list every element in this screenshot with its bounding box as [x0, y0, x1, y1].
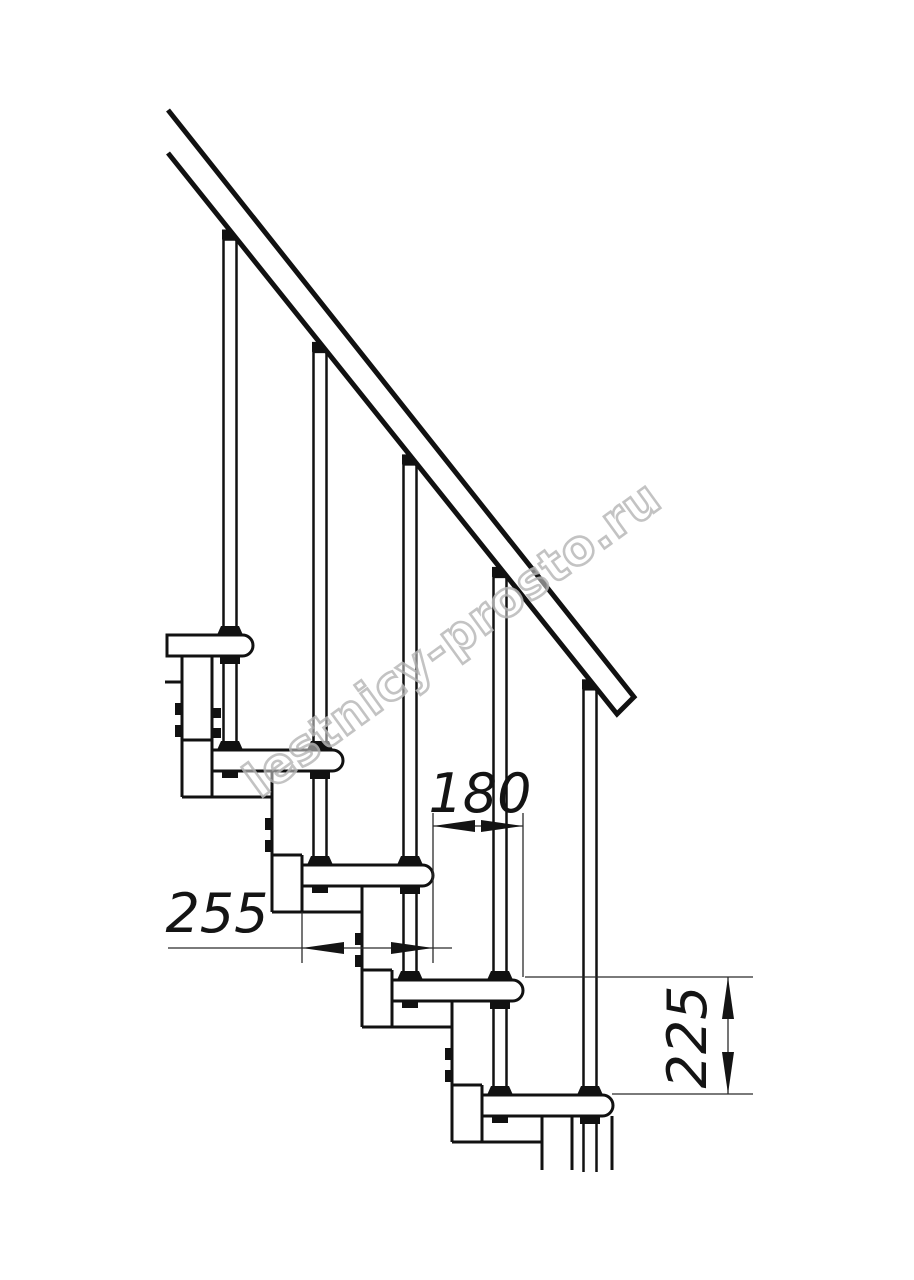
tread [167, 635, 253, 656]
bolt [175, 703, 182, 715]
handrail-profile [168, 110, 634, 714]
bolt [220, 656, 240, 664]
bolt [445, 1070, 452, 1082]
tread [302, 865, 433, 886]
dimension-arrow [391, 942, 433, 954]
flange [577, 1086, 603, 1095]
baluster [314, 352, 327, 750]
bolt [402, 1001, 418, 1008]
flange [487, 971, 513, 980]
bolt [400, 886, 420, 894]
bolt [492, 1116, 508, 1123]
dimension-rise-label: 225 [656, 985, 719, 1088]
flange [397, 971, 423, 980]
watermark: lestnicy-prosto.ru [234, 469, 672, 808]
bolt [355, 933, 362, 945]
handrail [168, 110, 634, 714]
dimension-depth-label: 255 [165, 882, 268, 945]
dimension-run-label: 180 [428, 762, 531, 825]
dimension-arrow [722, 977, 734, 1019]
drawing-canvas: 180 255 225 lestnicy-prosto.ru [0, 0, 914, 1280]
bolt [312, 886, 328, 893]
bolt [265, 818, 272, 830]
tread [392, 980, 523, 1001]
baluster [584, 689, 597, 1095]
bolt [175, 725, 182, 737]
flange [217, 741, 243, 750]
tread [482, 1095, 613, 1116]
baluster [224, 240, 237, 636]
flange [487, 1086, 513, 1095]
flange [307, 856, 333, 865]
staircase-elevation-svg: 180 255 225 lestnicy-prosto.ru [0, 0, 914, 1280]
bolt [490, 1001, 510, 1009]
bolt [222, 771, 238, 778]
bolt [355, 955, 362, 967]
dimension-arrow [722, 1052, 734, 1094]
bolt [212, 708, 221, 718]
bolt [445, 1048, 452, 1060]
bolt [212, 728, 221, 738]
dimension-arrow [302, 942, 344, 954]
bolt [265, 840, 272, 852]
dimension-labels: 180 255 225 [165, 762, 719, 1089]
flange [217, 626, 243, 635]
flange [397, 856, 423, 865]
bolt [580, 1116, 600, 1124]
